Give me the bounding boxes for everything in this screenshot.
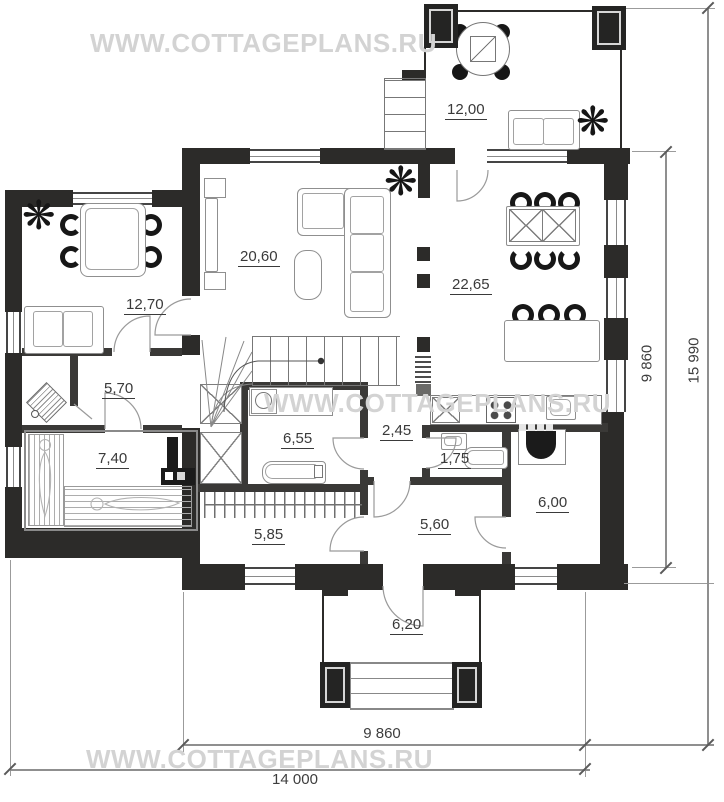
room-label-lobby: 2,45 [380,422,413,439]
room-label-porch: 6,20 [390,616,423,633]
room-label-living: 20,60 [238,248,280,265]
room-label-dining: 12,70 [124,296,166,313]
room-label-wc: 1,75 [438,450,471,467]
watermark-middle: WWW.COTTAGEPLANS.RU [264,388,611,419]
watermark-top: WWW.COTTAGEPLANS.RU [90,28,437,59]
room-label-back-room: 5,60 [418,516,451,533]
floor-plan: WWW.COTTAGEPLANS.RU WWW.COTTAGEPLANS.RU … [0,0,724,802]
room-label-boiler: 6,00 [536,494,569,511]
room-label-hall: 5,70 [102,380,135,397]
watermark-bottom: WWW.COTTAGEPLANS.RU [86,744,433,775]
stairs-winder [202,337,252,427]
room-label-terrace: 12,00 [445,101,487,118]
room-label-sauna: 7,40 [96,450,129,467]
dim-bottom-inner: 9 860 [347,725,417,742]
room-label-kitchen: 22,65 [450,276,492,293]
room-label-wardrobe: 5,85 [252,526,285,543]
dim-right-inner: 9 860 [639,329,656,399]
dim-right-outer: 15 990 [686,321,703,401]
room-label-bathroom: 6,55 [281,430,314,447]
